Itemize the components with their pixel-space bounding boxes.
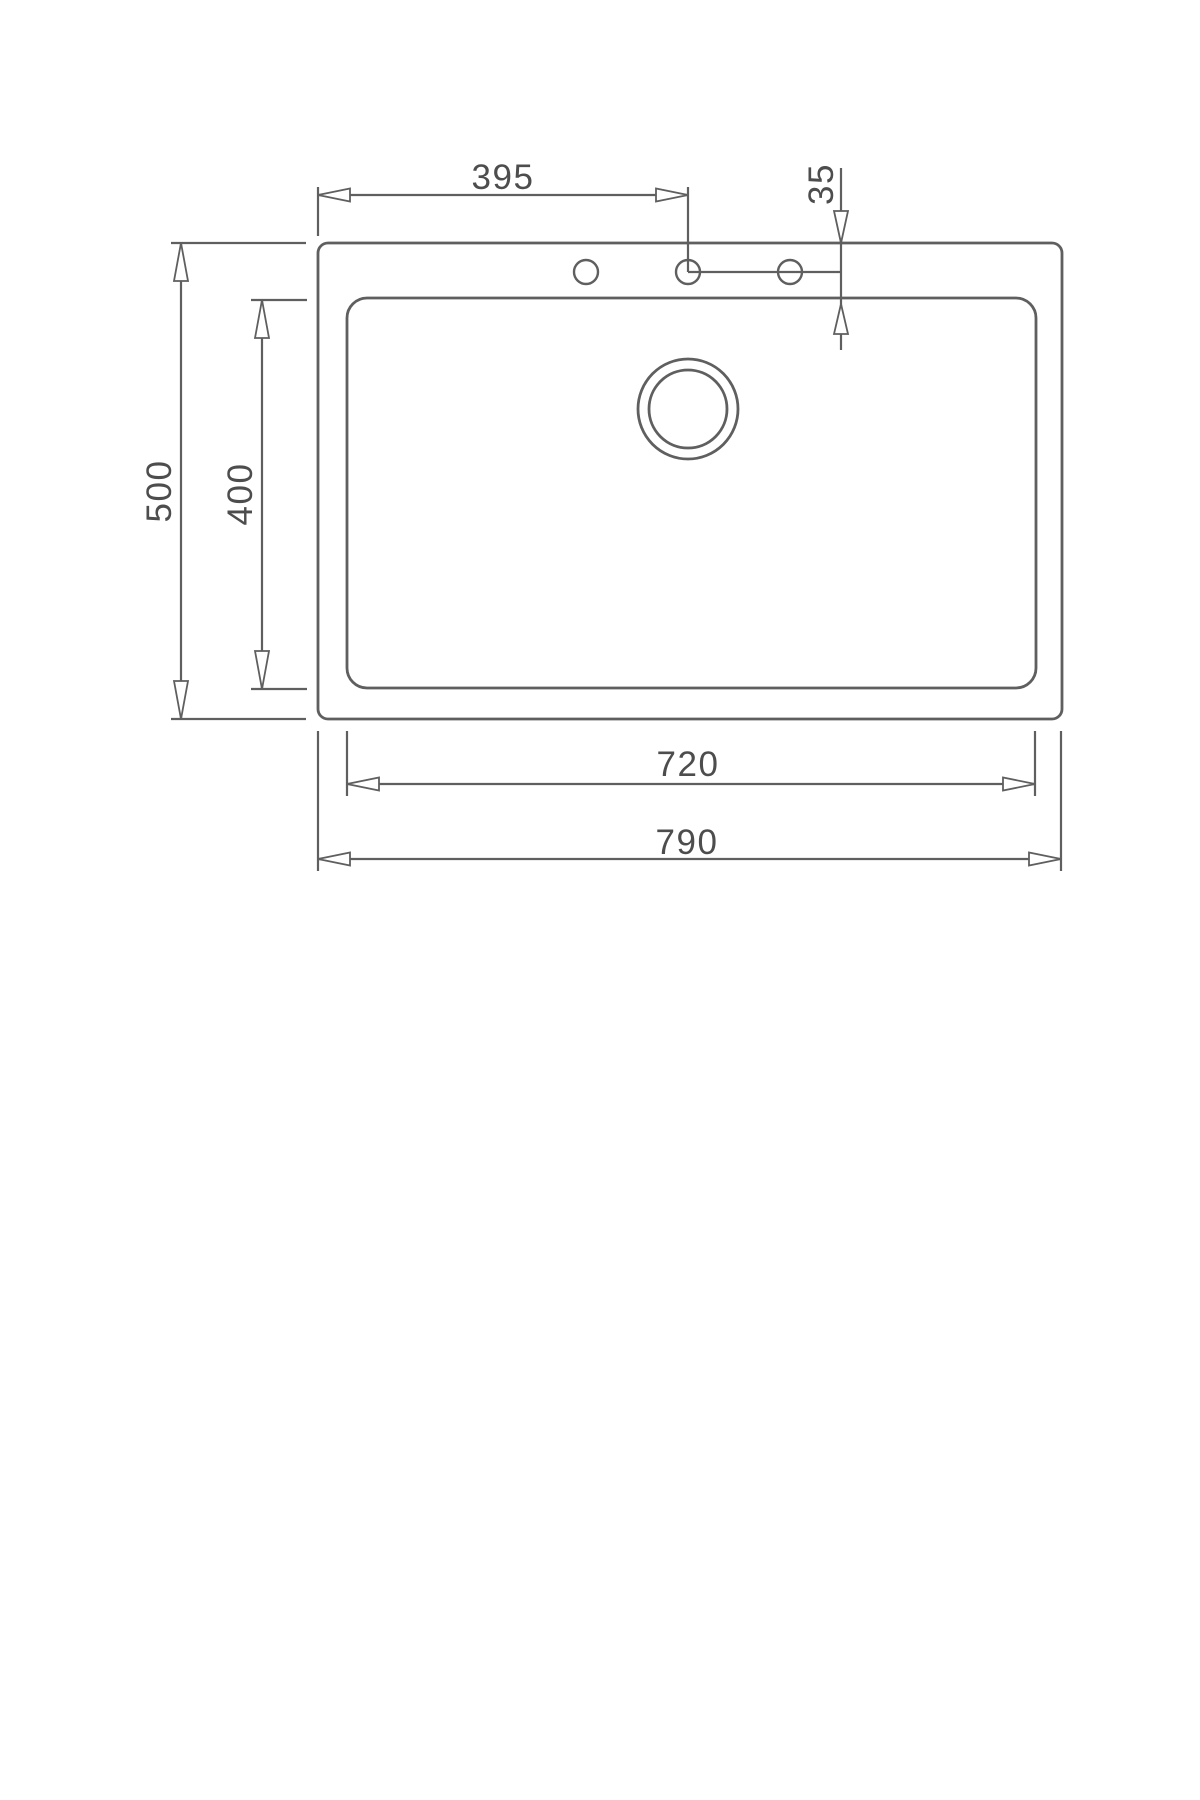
svg-text:400: 400 [221,463,260,526]
svg-text:35: 35 [802,163,841,205]
svg-text:500: 500 [140,460,179,523]
svg-text:395: 395 [472,158,535,197]
svg-text:720: 720 [657,745,720,784]
svg-text:790: 790 [656,823,719,862]
